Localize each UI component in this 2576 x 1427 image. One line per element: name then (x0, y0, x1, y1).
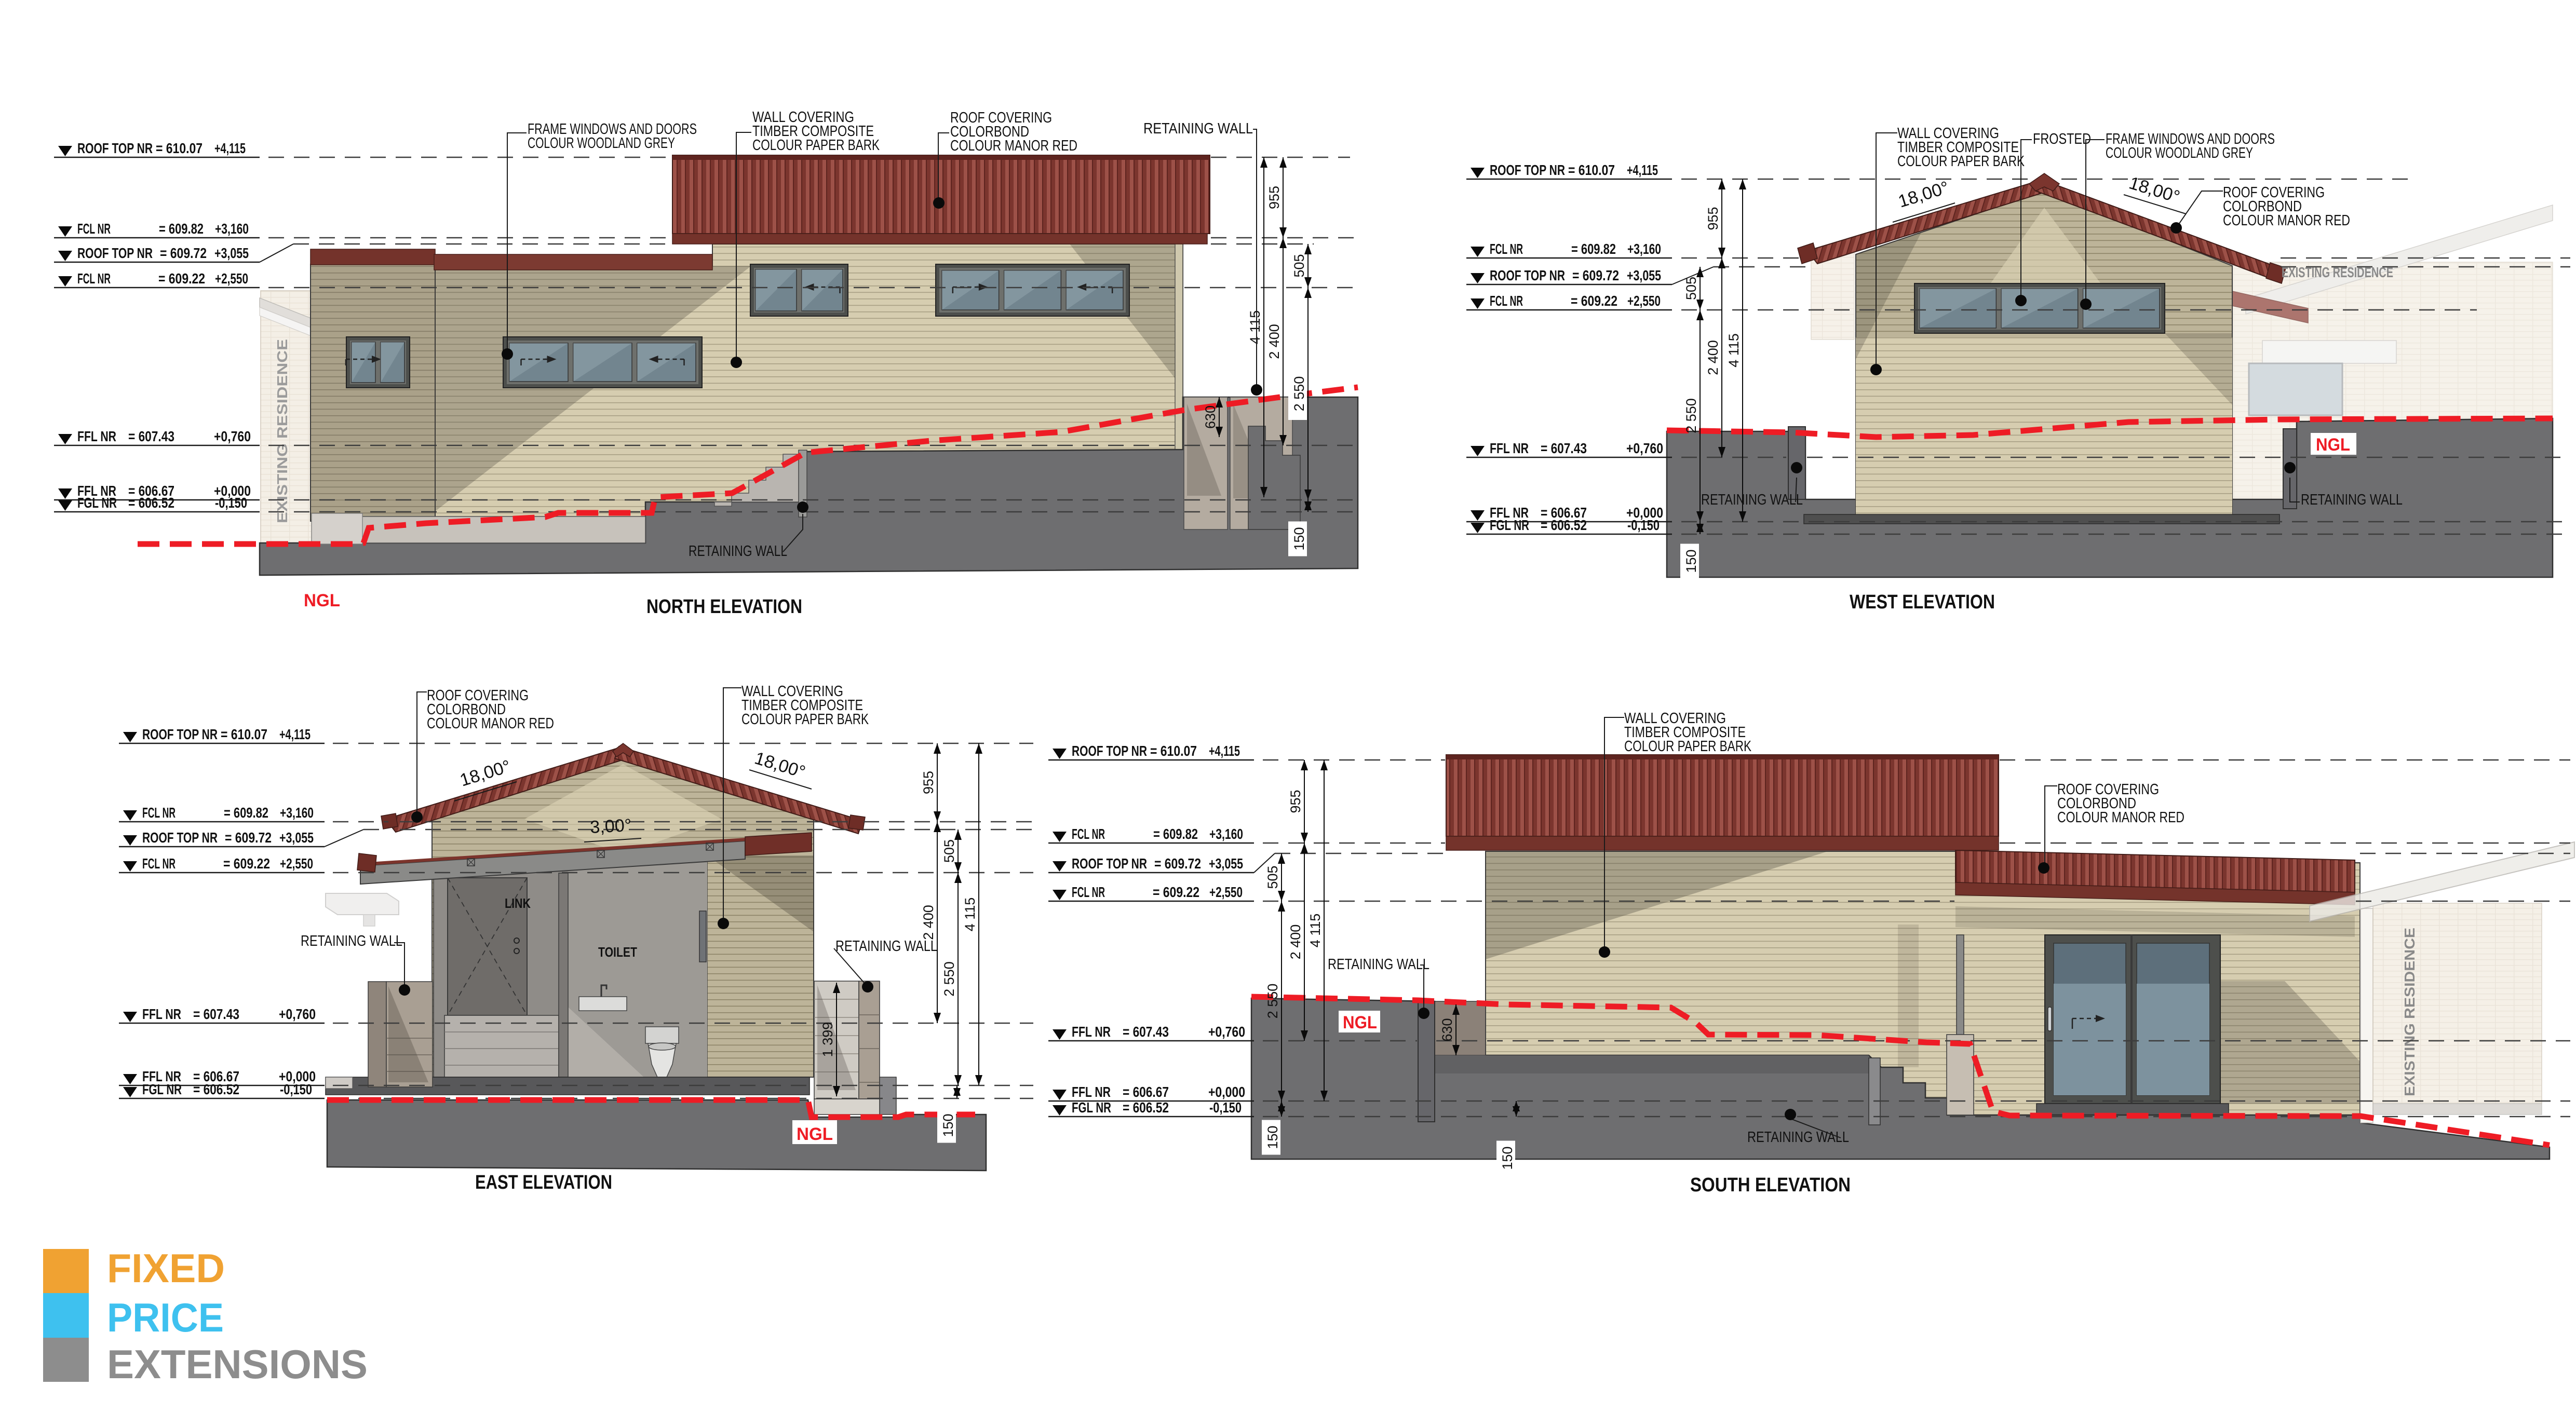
svg-text:NGL: NGL (2316, 435, 2350, 455)
svg-text:= 609.82: = 609.82 (224, 805, 268, 821)
svg-text:4 115: 4 115 (1247, 310, 1263, 345)
svg-text:TOILET: TOILET (598, 944, 637, 960)
svg-text:COLOUR PAPER BARK: COLOUR PAPER BARK (741, 711, 869, 728)
svg-text:2 400: 2 400 (1288, 925, 1303, 960)
svg-text:LINK: LINK (505, 895, 531, 911)
svg-text:FCL NR: FCL NR (142, 855, 176, 872)
svg-text:= 609.82: = 609.82 (159, 221, 204, 237)
svg-text:2 400: 2 400 (1705, 340, 1721, 375)
svg-text:+4,115: +4,115 (1627, 162, 1658, 178)
svg-text:ROOF TOP NR: ROOF TOP NR (77, 245, 153, 261)
svg-text:2 550: 2 550 (1265, 984, 1280, 1019)
svg-text:FCL NR: FCL NR (1490, 241, 1523, 257)
svg-text:SOUTH ELEVATION: SOUTH ELEVATION (1690, 1174, 1851, 1196)
svg-text:-0,150: -0,150 (280, 1081, 312, 1097)
svg-text:505: 505 (941, 839, 957, 863)
svg-text:505: 505 (1265, 865, 1280, 889)
svg-text:RETAINING WALL: RETAINING WALL (301, 933, 402, 949)
svg-text:150: 150 (940, 1113, 956, 1137)
svg-text:RETAINING WALL: RETAINING WALL (1143, 120, 1253, 137)
svg-text:2 400: 2 400 (921, 905, 936, 940)
svg-text:+3,160: +3,160 (1209, 826, 1243, 842)
svg-text:FGL NR: FGL NR (77, 495, 117, 511)
svg-text:COLOUR PAPER BARK: COLOUR PAPER BARK (752, 137, 880, 154)
svg-text:RETAINING WALL: RETAINING WALL (1328, 956, 1429, 973)
svg-text:EXISTING RESIDENCE: EXISTING RESIDENCE (2282, 264, 2393, 280)
svg-text:+0,000: +0,000 (1208, 1084, 1245, 1100)
svg-text:COLOUR MANOR RED: COLOUR MANOR RED (950, 138, 1077, 154)
svg-text:955: 955 (921, 771, 936, 794)
svg-text:955: 955 (1705, 207, 1721, 230)
svg-text:NGL: NGL (1343, 1013, 1377, 1032)
svg-text:4 115: 4 115 (1726, 333, 1742, 368)
svg-text:+3,055: +3,055 (1627, 267, 1661, 283)
svg-text:= 609.72: = 609.72 (1154, 855, 1201, 872)
svg-text:ROOF TOP NR: ROOF TOP NR (142, 830, 218, 846)
svg-text:+0,760: +0,760 (1208, 1024, 1245, 1040)
svg-text:4 115: 4 115 (1307, 914, 1323, 948)
svg-text:FGL NR: FGL NR (142, 1081, 182, 1097)
svg-text:-0,150: -0,150 (1627, 517, 1660, 533)
svg-text:FCL NR: FCL NR (142, 805, 176, 821)
svg-text:= 606.67: = 606.67 (1123, 1084, 1169, 1100)
svg-text:FROSTED: FROSTED (2033, 131, 2091, 147)
svg-text:ROOF TOP NR: ROOF TOP NR (1072, 855, 1147, 872)
svg-text:= 610.07: = 610.07 (156, 140, 203, 156)
svg-text:= 607.43: = 607.43 (128, 428, 174, 444)
svg-text:NGL: NGL (797, 1124, 833, 1144)
svg-text:-0,150: -0,150 (215, 495, 247, 511)
svg-text:= 610.07: = 610.07 (1568, 162, 1615, 178)
svg-text:FCL NR: FCL NR (1072, 826, 1105, 842)
svg-text:= 609.82: = 609.82 (1153, 826, 1198, 842)
svg-text:FFL NR: FFL NR (1490, 440, 1529, 456)
svg-text:EAST ELEVATION: EAST ELEVATION (475, 1172, 612, 1193)
svg-text:ROOF TOP NR: ROOF TOP NR (77, 140, 153, 156)
svg-text:+3,160: +3,160 (215, 221, 249, 237)
svg-text:+0,760: +0,760 (214, 428, 251, 444)
svg-text:FFL NR: FFL NR (77, 428, 116, 444)
svg-text:630: 630 (1439, 1018, 1455, 1041)
svg-text:RETAINING WALL: RETAINING WALL (1701, 492, 1803, 508)
svg-text:150: 150 (1683, 549, 1699, 573)
svg-text:= 609.72: = 609.72 (225, 830, 272, 846)
svg-text:4 115: 4 115 (962, 898, 978, 932)
svg-text:FCL NR: FCL NR (1490, 293, 1523, 309)
svg-text:EXISTING RESIDENCE: EXISTING RESIDENCE (2402, 928, 2418, 1096)
svg-text:PRICE: PRICE (107, 1295, 224, 1340)
svg-text:= 609.22: = 609.22 (1153, 884, 1199, 900)
svg-text:FFL NR: FFL NR (1072, 1024, 1111, 1040)
svg-text:COLOUR MANOR RED: COLOUR MANOR RED (427, 715, 554, 732)
svg-text:+0,760: +0,760 (279, 1006, 316, 1022)
svg-text:+3,055: +3,055 (1209, 855, 1243, 872)
svg-text:-0,150: -0,150 (1209, 1099, 1242, 1116)
svg-text:FGL NR: FGL NR (1072, 1099, 1111, 1116)
svg-text:+2,550: +2,550 (1209, 884, 1243, 900)
svg-text:EXISTING RESIDENCE: EXISTING RESIDENCE (274, 339, 290, 523)
svg-text:COLOUR WOODLAND GREY: COLOUR WOODLAND GREY (528, 135, 675, 152)
svg-text:= 606.52: = 606.52 (1541, 517, 1587, 533)
svg-text:150: 150 (1291, 527, 1307, 550)
svg-text:RETAINING WALL: RETAINING WALL (1747, 1129, 1849, 1146)
svg-text:RETAINING WALL: RETAINING WALL (689, 543, 787, 560)
svg-text:COLOUR PAPER BARK: COLOUR PAPER BARK (1897, 153, 2025, 170)
svg-text:COLOUR PAPER BARK: COLOUR PAPER BARK (1624, 738, 1752, 755)
svg-text:+2,550: +2,550 (280, 855, 313, 872)
svg-text:ROOF TOP NR: ROOF TOP NR (1490, 162, 1565, 178)
svg-text:EXTENSIONS: EXTENSIONS (107, 1341, 368, 1387)
svg-text:FCL NR: FCL NR (77, 270, 111, 287)
svg-text:NORTH ELEVATION: NORTH ELEVATION (646, 596, 802, 618)
svg-text:NGL: NGL (304, 591, 340, 610)
svg-text:RETAINING WALL: RETAINING WALL (835, 938, 937, 955)
svg-text:630: 630 (1203, 405, 1218, 429)
svg-text:FCL NR: FCL NR (77, 221, 111, 237)
svg-text:+2,550: +2,550 (1627, 293, 1661, 309)
svg-text:+3,055: +3,055 (214, 245, 249, 261)
svg-text:= 609.22: = 609.22 (1571, 293, 1617, 309)
svg-text:FFL NR: FFL NR (142, 1006, 181, 1022)
svg-text:+2,550: +2,550 (215, 270, 248, 287)
svg-text:150: 150 (1265, 1125, 1280, 1149)
svg-text:= 609.22: = 609.22 (223, 855, 270, 872)
svg-text:+3,160: +3,160 (1627, 241, 1661, 257)
svg-text:ROOF TOP NR: ROOF TOP NR (1490, 267, 1565, 283)
svg-text:ROOF TOP NR: ROOF TOP NR (142, 726, 218, 742)
svg-text:955: 955 (1266, 186, 1282, 209)
svg-text:2 400: 2 400 (1266, 324, 1282, 359)
svg-text:+3,160: +3,160 (280, 805, 314, 821)
svg-text:+4,115: +4,115 (214, 140, 246, 156)
svg-text:= 609.72: = 609.72 (1572, 267, 1619, 283)
svg-text:= 609.82: = 609.82 (1571, 241, 1616, 257)
svg-text:COLOUR MANOR RED: COLOUR MANOR RED (2223, 212, 2350, 229)
svg-text:+0,760: +0,760 (1626, 440, 1663, 456)
svg-text:FCL NR: FCL NR (1072, 884, 1105, 900)
svg-text:= 610.07: = 610.07 (221, 726, 267, 742)
svg-text:COLOUR MANOR RED: COLOUR MANOR RED (2057, 809, 2184, 826)
svg-text:3,00°: 3,00° (589, 816, 632, 837)
svg-text:= 609.22: = 609.22 (158, 270, 205, 287)
svg-text:+3,055: +3,055 (279, 830, 314, 846)
svg-text:ROOF TOP NR: ROOF TOP NR (1072, 743, 1147, 759)
svg-text:= 610.07: = 610.07 (1150, 743, 1197, 759)
svg-text:FFL NR: FFL NR (1072, 1084, 1111, 1100)
svg-text:FGL NR: FGL NR (1490, 517, 1529, 533)
svg-text:= 606.52: = 606.52 (128, 495, 174, 511)
svg-text:2 550: 2 550 (1683, 398, 1699, 433)
svg-text:1 399: 1 399 (820, 1022, 835, 1057)
svg-text:COLOUR WOODLAND GREY: COLOUR WOODLAND GREY (2106, 145, 2253, 161)
svg-text:= 607.43: = 607.43 (193, 1006, 239, 1022)
svg-text:505: 505 (1291, 254, 1307, 277)
svg-text:FIXED: FIXED (107, 1245, 225, 1291)
svg-text:= 606.52: = 606.52 (193, 1081, 239, 1097)
svg-text:WEST ELEVATION: WEST ELEVATION (1850, 591, 1995, 613)
svg-text:+4,115: +4,115 (1209, 743, 1240, 759)
svg-text:2 550: 2 550 (1291, 376, 1307, 412)
svg-text:= 606.52: = 606.52 (1123, 1099, 1169, 1116)
svg-text:= 607.43: = 607.43 (1541, 440, 1587, 456)
svg-text:RETAINING WALL: RETAINING WALL (2301, 492, 2403, 508)
svg-text:= 607.43: = 607.43 (1123, 1024, 1169, 1040)
svg-text:505: 505 (1683, 277, 1699, 300)
svg-text:= 609.72: = 609.72 (160, 245, 207, 261)
svg-text:150: 150 (1500, 1146, 1515, 1170)
svg-text:955: 955 (1288, 790, 1303, 813)
svg-text:2 550: 2 550 (941, 961, 957, 997)
svg-text:+4,115: +4,115 (279, 726, 311, 742)
